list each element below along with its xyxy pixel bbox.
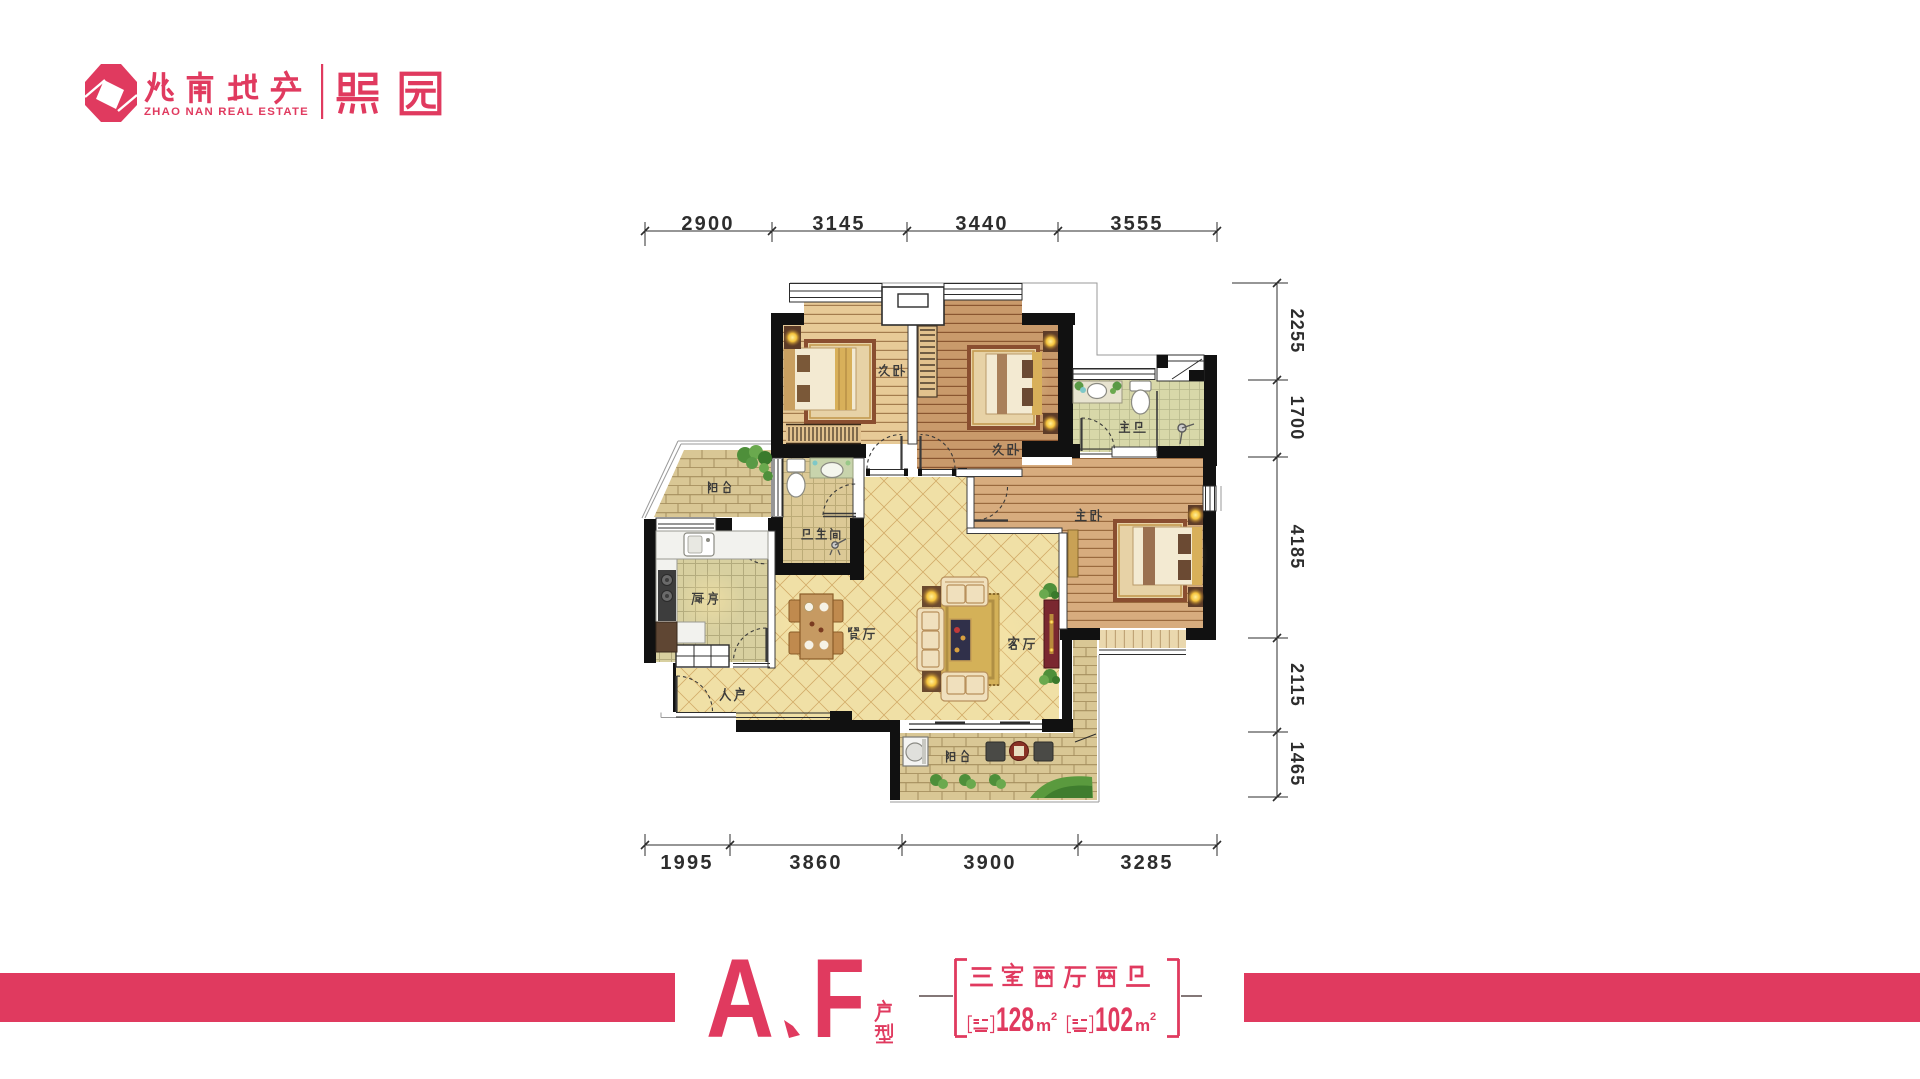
svg-text:1995: 1995 (660, 852, 713, 874)
svg-text:1465: 1465 (1287, 742, 1307, 787)
svg-text:ZHAO NAN REAL ESTATE: ZHAO NAN REAL ESTATE (144, 106, 309, 118)
svg-text:3440: 3440 (955, 213, 1008, 235)
svg-text:2115: 2115 (1287, 663, 1307, 707)
svg-text:A: A (706, 936, 774, 1061)
svg-text:102: 102 (1095, 1001, 1133, 1039)
svg-text:2: 2 (1150, 1011, 1156, 1023)
svg-text:2255: 2255 (1287, 309, 1307, 354)
svg-text:3555: 3555 (1110, 213, 1163, 235)
svg-text:2900: 2900 (681, 213, 734, 235)
svg-text:1700: 1700 (1287, 396, 1307, 441)
svg-text:3860: 3860 (789, 852, 842, 874)
svg-text:128: 128 (996, 1001, 1034, 1039)
svg-text:F: F (812, 936, 865, 1061)
svg-text:3145: 3145 (812, 213, 865, 235)
svg-text:3285: 3285 (1120, 852, 1173, 874)
svg-text:3900: 3900 (963, 852, 1016, 874)
svg-text:2: 2 (1051, 1011, 1057, 1023)
svg-text:4185: 4185 (1287, 525, 1307, 570)
svg-text:m: m (1036, 1016, 1051, 1035)
svg-text:m: m (1135, 1016, 1150, 1035)
